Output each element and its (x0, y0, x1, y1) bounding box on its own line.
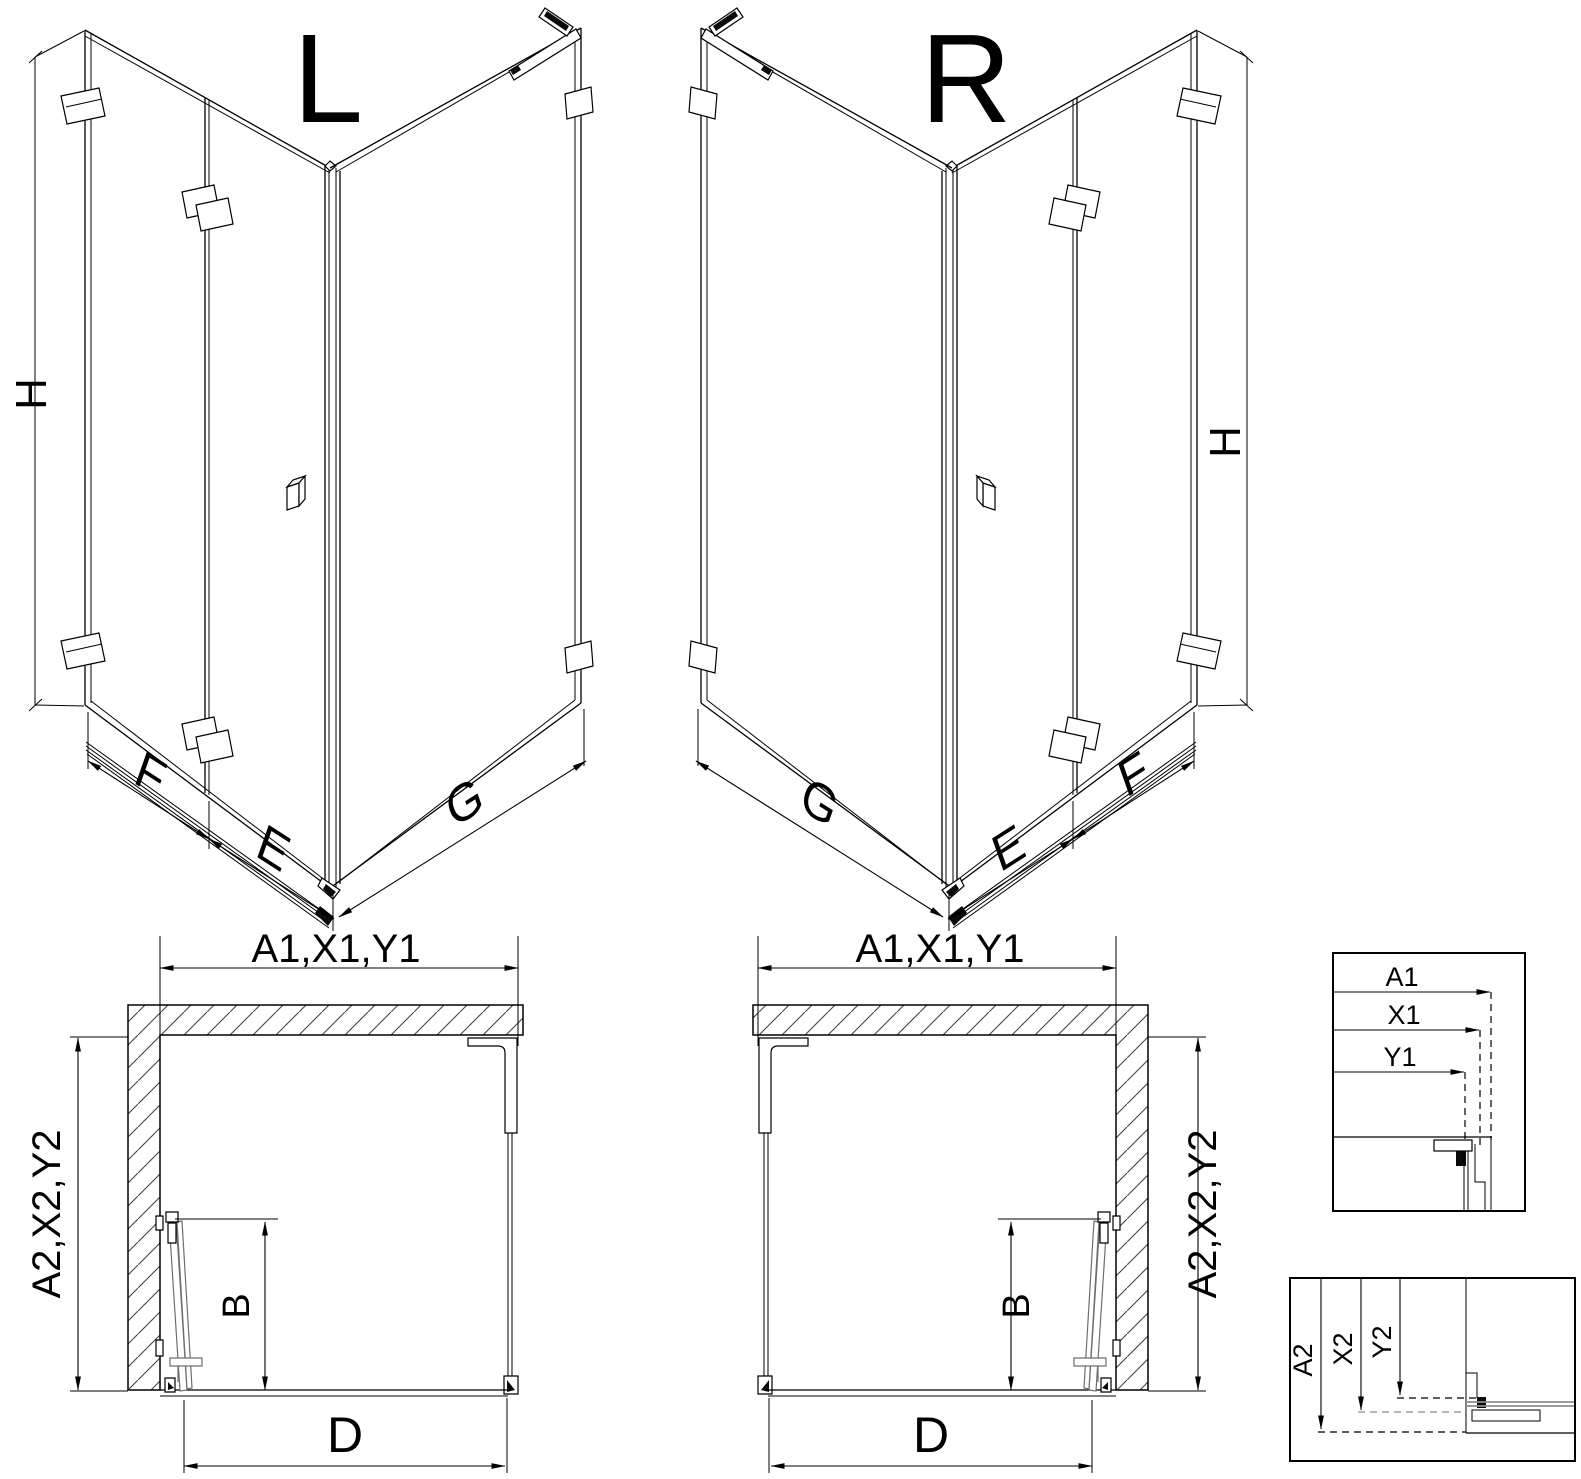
detail-y2-label: Y2 (1367, 1325, 1397, 1358)
plan-view-left: A1,X1,Y1 A2,X2,Y2 B D (25, 927, 523, 1473)
plan-right-depth-label: A2,X2,Y2 (1181, 1129, 1225, 1298)
plan-right-width-label: A1,X1,Y1 (855, 927, 1024, 971)
detail-a1-label: A1 (1385, 962, 1418, 992)
plan-left-entry-label: D (327, 1407, 363, 1463)
technical-drawing-svg: L H F E G R H G E F A1,X1,Y1 A2,X2,Y2 B … (0, 0, 1581, 1479)
detail-x2-label: X2 (1328, 1332, 1358, 1365)
variant-label-left: L (293, 8, 363, 149)
variant-label-right: R (921, 8, 1012, 149)
depth-profile-section (1466, 1373, 1574, 1433)
height-dim-label-left: H (7, 378, 56, 410)
plan-right-door-label: B (996, 1293, 1038, 1318)
plan-view-right: A1,X1,Y1 A2,X2,Y2 B D (753, 927, 1225, 1473)
height-dim-label-right: H (1201, 426, 1250, 458)
detail-depth-offsets: A2 X2 Y2 (1288, 1278, 1575, 1461)
plan-right-entry-label: D (913, 1407, 949, 1463)
width-profile-section (1434, 1137, 1491, 1210)
detail-a2-label: A2 (1288, 1343, 1318, 1376)
detail-y1-label: Y1 (1383, 1042, 1416, 1072)
plan-left-door-label: B (216, 1293, 258, 1318)
shower-enclosure-drawing: L H F E G R H G E F A1,X1,Y1 A2,X2,Y2 B … (0, 0, 1581, 1479)
plan-left-width-label: A1,X1,Y1 (251, 927, 420, 971)
f-dim-label-left: F (129, 739, 173, 808)
detail-x1-label: X1 (1387, 1000, 1420, 1030)
detail-width-offsets: A1 X1 Y1 (1333, 953, 1525, 1211)
plan-left-depth-label: A2,X2,Y2 (25, 1129, 69, 1298)
iso-view-right: R H G E F (689, 8, 1253, 931)
iso-view-left: L H F E G (7, 8, 593, 931)
